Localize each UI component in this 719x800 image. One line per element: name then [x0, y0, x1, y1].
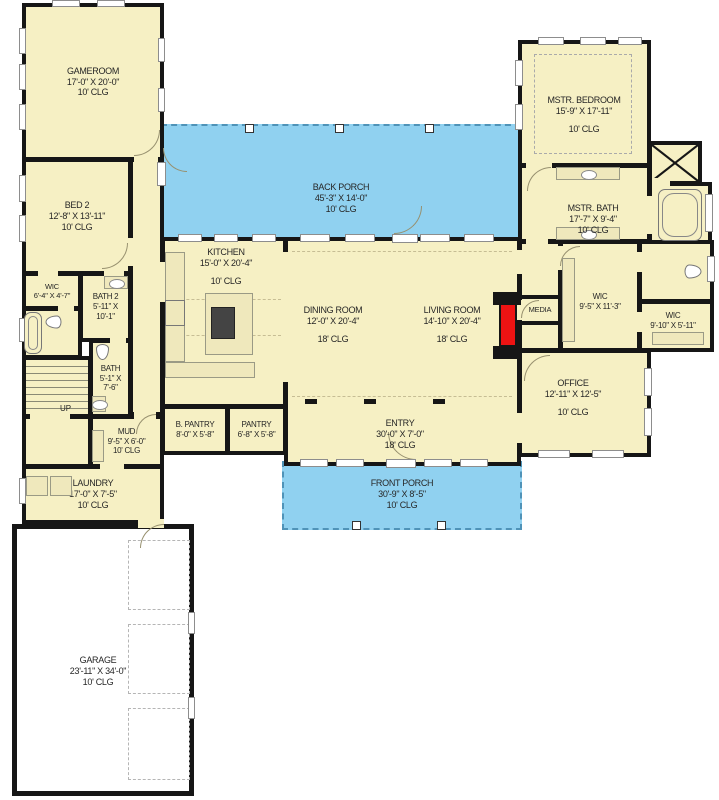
room-name: WIC	[593, 292, 608, 302]
window	[460, 459, 488, 467]
porch-post	[352, 521, 361, 530]
x-cross-icon	[652, 145, 698, 181]
stairs-up-label: UP	[60, 404, 71, 413]
room-name: BATH	[100, 364, 121, 374]
room-name: MSTR. BATH	[568, 203, 619, 214]
window	[19, 175, 26, 202]
master-bath-label: MSTR. BATH 17'-7" X 9'-4" 10' CLG	[543, 203, 643, 236]
room-name: GARAGE	[80, 655, 117, 666]
window	[464, 234, 494, 242]
room-dims: 10'-1"	[93, 312, 119, 322]
room-dims: 14'-10" X 20'-4"	[423, 316, 480, 327]
refrigerator-icon	[165, 300, 185, 326]
room-front-porch: FRONT PORCH 30'-9" X 8'-5" 10' CLG	[282, 461, 522, 530]
door-master-bath-hall	[526, 238, 548, 246]
window	[158, 38, 165, 62]
door-bath2	[104, 268, 124, 276]
porch-door-opening	[157, 162, 166, 186]
master-vanity-sink	[556, 167, 620, 180]
room-clg: 10' CLG	[83, 677, 114, 688]
room-clg: 10' CLG	[558, 407, 589, 418]
range-icon	[211, 307, 235, 339]
room-dims: 45'-3" X 14'-0"	[315, 193, 367, 204]
room-name: OFFICE	[557, 378, 588, 389]
porch-post	[245, 124, 254, 133]
opening-stairs-hall	[30, 412, 70, 420]
gameroom-label: GAMEROOM 17'-0" X 20'-0" 10' CLG	[67, 66, 119, 99]
entry-label: ENTRY 30'-0" X 7'-0" 18' CLG	[310, 418, 490, 451]
room-dims: 12'-8" X 13'-11"	[49, 211, 105, 222]
room-name: WIC	[34, 282, 70, 291]
floor-plan: BACK PORCH 45'-3" X 14'-0" 10' CLG FRONT…	[0, 0, 719, 800]
room-name: WIC	[666, 311, 681, 321]
room-clg: 18' CLG	[385, 440, 416, 451]
window	[592, 450, 624, 458]
opening-tub-alcove	[645, 196, 653, 234]
room-name: DINING ROOM	[304, 305, 363, 316]
window	[300, 234, 330, 242]
room-dims: 9'-5" X 11'-3"	[579, 302, 620, 312]
room-dims: 12'-11" X 12'-5"	[545, 389, 601, 400]
room-water-closet	[638, 240, 714, 303]
window	[707, 256, 715, 282]
door-wic-bed2	[38, 268, 58, 276]
room-name: BED 2	[49, 200, 105, 211]
window	[538, 450, 570, 458]
porch-post	[425, 124, 434, 133]
room-dims: 6'-8" X 5'-8"	[238, 430, 276, 440]
dining-label: DINING ROOM 12'-0" X 20'-4" 18' CLG	[283, 305, 383, 345]
room-name: BATH 2	[93, 292, 119, 302]
window	[188, 612, 195, 634]
room-dims: 8'-0" X 5'-8"	[176, 430, 215, 440]
wic-shelving	[652, 332, 704, 345]
window	[644, 408, 652, 436]
room-dims: 17'-0" X 20'-0"	[67, 77, 119, 88]
door-tub-room	[58, 303, 74, 311]
bed2-label: BED 2 12'-8" X 13'-11" 10' CLG	[49, 200, 105, 233]
window	[515, 104, 523, 130]
room-clg: 10' CLG	[578, 225, 609, 236]
garage-label: GARAGE 23'-11" X 34'-0" 10' CLG	[18, 655, 178, 688]
window	[178, 234, 202, 242]
washer-icon	[26, 476, 48, 496]
wic-2-label: WIC 9'-10" X 5'-11"	[633, 311, 713, 331]
room-clg: 18' CLG	[318, 334, 349, 345]
door-bath	[110, 335, 126, 343]
room-dims: 15'-0" X 20'-4"	[200, 258, 252, 269]
back-door-opening	[392, 234, 418, 243]
ceiling-line	[292, 396, 512, 397]
wall-stub	[364, 399, 376, 404]
room-name: LIVING ROOM	[424, 305, 481, 316]
opening-living-hall	[516, 250, 523, 274]
room-dims: 30'-0" X 7'-0"	[376, 429, 424, 440]
room-dims: 5'-1" X	[100, 374, 121, 384]
bathtub-icon	[24, 312, 42, 354]
window	[19, 28, 26, 54]
room-clg: 10' CLG	[326, 204, 357, 215]
garage-bay-outline	[128, 540, 190, 610]
window	[424, 459, 452, 467]
room-name: ENTRY	[386, 418, 415, 429]
window	[345, 234, 375, 242]
bath2-vanity-sink	[104, 276, 128, 289]
window	[52, 0, 80, 7]
window	[618, 37, 642, 45]
bath-label: BATH 5'-1" X 7'-6"	[100, 364, 121, 393]
door-laundry	[100, 461, 124, 469]
window	[420, 234, 450, 242]
window	[300, 459, 328, 467]
room-clg: 10' CLG	[371, 500, 434, 511]
wall-stub	[433, 399, 445, 404]
room-name: GAMEROOM	[67, 66, 119, 77]
front-porch-label: FRONT PORCH 30'-9" X 8'-5" 10' CLG	[371, 478, 434, 511]
room-clg: 10' CLG	[108, 446, 146, 456]
office-label: OFFICE 12'-11" X 12'-5" 10' CLG	[513, 378, 633, 418]
window	[336, 459, 364, 467]
window	[19, 215, 26, 242]
room-name: KITCHEN	[207, 247, 244, 258]
front-door-opening	[386, 459, 416, 468]
room-clg: 10' CLG	[211, 276, 242, 287]
room-name: FRONT PORCH	[371, 478, 434, 489]
window	[214, 234, 238, 242]
window	[580, 37, 606, 45]
living-label: LIVING ROOM 14'-10" X 20'-4" 18' CLG	[402, 305, 502, 345]
master-tub-icon	[658, 189, 702, 241]
room-dims: 23'-11" X 34'-0"	[70, 666, 126, 677]
room-dims: 30'-9" X 8'-5"	[371, 489, 434, 500]
wall-stub	[305, 399, 317, 404]
room-name: MSTR. BEDROOM	[547, 95, 620, 106]
window	[19, 104, 26, 130]
toilet-icon	[46, 316, 62, 329]
door-water-closet	[635, 252, 643, 272]
room-dims: 15'-9" X 17'-11"	[556, 106, 612, 117]
window	[19, 64, 26, 90]
room-name: B. PANTRY	[176, 420, 215, 430]
window	[515, 60, 523, 86]
kitchen-base-cabinets	[165, 362, 255, 378]
pantry-label: PANTRY 6'-8" X 5'-8"	[238, 420, 276, 440]
staircase	[22, 356, 92, 418]
fireplace-surround	[493, 346, 521, 359]
porch-post	[335, 124, 344, 133]
bath2-label: BATH 2 5'-11" X 10'-1"	[93, 292, 119, 321]
window	[705, 194, 713, 232]
garage-bay-outline	[128, 708, 190, 780]
room-dims: 6'-4" X 4'-7"	[34, 291, 70, 300]
room-dims: 9'-10" X 5'-11"	[650, 321, 695, 331]
hallway-to-garage	[22, 415, 92, 468]
wic-bed2-label: WIC 6'-4" X 4'-7"	[34, 282, 70, 300]
opening-attic-box	[652, 178, 670, 186]
window	[252, 234, 276, 242]
master-bedroom-label: MSTR. BEDROOM 15'-9" X 17'-11" 10' CLG	[524, 95, 644, 135]
window	[644, 368, 652, 396]
room-dims: 9'-5" X 6'-0"	[108, 437, 146, 447]
laundry-label: LAUNDRY 17'-0" X 7'-5" 10' CLG	[69, 478, 117, 511]
room-butlers-pantry: B. PANTRY 8'-0" X 5'-8"	[161, 405, 229, 455]
bath-vanity-sink	[92, 396, 106, 412]
room-dims: 7'-6"	[100, 383, 121, 393]
window	[19, 478, 26, 504]
window	[158, 88, 165, 112]
dryer-icon	[50, 476, 72, 496]
window	[97, 0, 125, 7]
room-clg: 10' CLG	[49, 222, 105, 233]
wic-master-label: WIC 9'-5" X 11'-3"	[560, 292, 640, 312]
room-dims: 17'-7" X 9'-4"	[569, 214, 617, 225]
door-gameroom	[134, 156, 158, 165]
room-clg: 10' CLG	[69, 500, 117, 511]
room-dims: 17'-0" X 7'-5"	[69, 489, 117, 500]
porch-post	[437, 521, 446, 530]
window	[538, 37, 564, 45]
room-dims: 5'-11" X	[93, 302, 119, 312]
back-porch-label: BACK PORCH 45'-3" X 14'-0" 10' CLG	[241, 182, 441, 215]
room-clg: 10' CLG	[67, 87, 119, 98]
room-pantry: PANTRY 6'-8" X 5'-8"	[226, 405, 287, 455]
ceiling-line	[292, 251, 512, 252]
room-name: PANTRY	[238, 420, 276, 430]
kitchen-label: KITCHEN 15'-0" X 20'-4" 10' CLG	[167, 247, 285, 287]
room-name: LAUNDRY	[69, 478, 117, 489]
room-clg: 18' CLG	[437, 334, 468, 345]
window	[188, 697, 195, 719]
mud-bench	[92, 430, 104, 462]
room-dims: 12'-0" X 20'-4"	[307, 316, 359, 327]
room-clg: 10' CLG	[569, 124, 600, 135]
b-pantry-label: B. PANTRY 8'-0" X 5'-8"	[176, 420, 215, 440]
room-name: BACK PORCH	[313, 182, 370, 193]
